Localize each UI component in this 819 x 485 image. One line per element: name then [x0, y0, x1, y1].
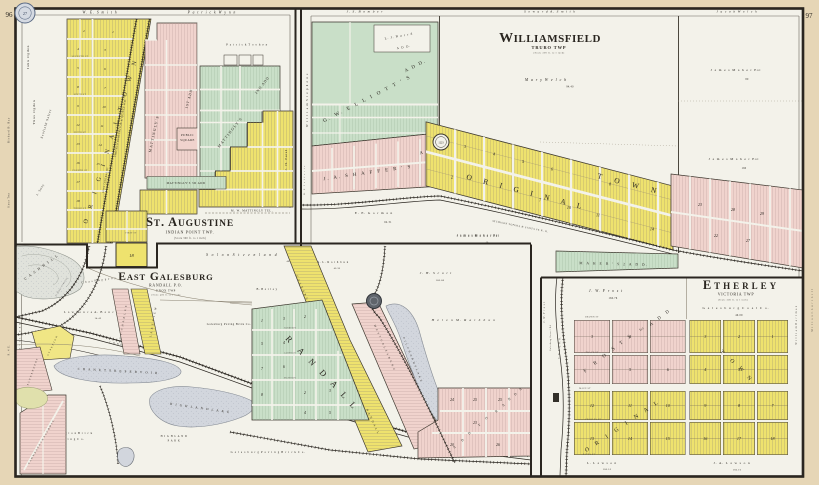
svg-text:RANDALL P.O.: RANDALL P.O. — [149, 284, 183, 288]
svg-text:17: 17 — [76, 180, 80, 184]
svg-text:160.16: 160.16 — [603, 468, 612, 471]
svg-text:FIFTH ST: FIFTH ST — [74, 132, 86, 134]
svg-text:S o l o n S t e e n l a n d: S o l o n S t e e n l a n d — [206, 253, 278, 257]
svg-text:6: 6 — [283, 365, 285, 369]
svg-text:MAIN ST: MAIN ST — [579, 387, 591, 390]
svg-text:GARFIELD: GARFIELD — [284, 352, 296, 355]
svg-text:MATTINGLY'S 3D ADD: MATTINGLY'S 3D ADD — [167, 181, 206, 185]
svg-text:2: 2 — [451, 175, 453, 180]
svg-text:BROWN ST: BROWN ST — [585, 317, 599, 319]
svg-text:J. W. F r o s t: J. W. F r o s t — [543, 301, 546, 322]
svg-text:TRURO TWP: TRURO TWP — [532, 45, 567, 50]
svg-text:4: 4 — [493, 152, 495, 157]
svg-text:97: 97 — [806, 12, 814, 20]
svg-text:5: 5 — [77, 66, 79, 70]
svg-text:SEVENTH ST: SEVENTH ST — [72, 56, 89, 58]
svg-text:E. E. G o r m a n: E. E. G o r m a n — [355, 211, 393, 215]
svg-text:23: 23 — [698, 202, 702, 207]
svg-text:15: 15 — [666, 436, 670, 441]
svg-text:3: 3 — [704, 334, 706, 339]
svg-text:14.43: 14.43 — [95, 317, 102, 320]
svg-text:VICTORIA TWP: VICTORIA TWP — [718, 292, 755, 297]
svg-text:8: 8 — [77, 85, 79, 89]
svg-text:(Scale 300 ft. to 1 inch): (Scale 300 ft. to 1 inch) — [533, 52, 564, 55]
svg-text:160: 160 — [742, 167, 747, 170]
svg-text:KNOX TWP: KNOX TWP — [156, 289, 176, 293]
svg-text:40.09: 40.09 — [735, 314, 743, 317]
svg-text:HARRISON: HARRISON — [284, 327, 296, 330]
svg-text:18: 18 — [129, 253, 134, 258]
svg-text:9: 9 — [77, 104, 79, 108]
svg-text:14: 14 — [98, 143, 102, 147]
svg-text:40.38: 40.38 — [334, 268, 341, 270]
svg-text:H I G H L A N D: H I G H L A N D — [161, 435, 188, 438]
svg-text:11: 11 — [596, 213, 600, 218]
svg-text:11: 11 — [100, 124, 103, 128]
svg-text:80: 80 — [745, 78, 749, 81]
svg-text:96: 96 — [6, 11, 14, 19]
svg-text:M i l t o n C h u r c h i l l: M i l t o n C h u r c h i l l — [811, 288, 814, 331]
svg-text:TRACY ST: TRACY ST — [586, 351, 599, 354]
svg-text:27: 27 — [23, 11, 27, 16]
svg-text:4: 4 — [304, 411, 306, 415]
svg-text:8: 8 — [261, 393, 263, 397]
svg-text:5: 5 — [261, 342, 263, 346]
svg-text:94.40: 94.40 — [566, 86, 574, 89]
svg-text:P a t r i c k W y n n: P a t r i c k W y n n — [187, 11, 237, 15]
svg-text:J. W. F r o s t: J. W. F r o s t — [589, 289, 623, 293]
svg-text:1223: 1223 — [438, 142, 444, 145]
svg-text:12: 12 — [590, 403, 594, 408]
svg-text:L. L a w s o n: L. L a w s o n — [587, 461, 617, 465]
svg-text:M. W. MATTINGLY TEL.: M. W. MATTINGLY TEL. — [231, 210, 273, 213]
svg-text:6: 6 — [104, 67, 106, 71]
svg-text:B. B a i l e y: B. B a i l e y — [256, 288, 277, 291]
svg-text:W. E. S m i t h: W. E. S m i t h — [82, 11, 117, 15]
svg-text:J a m e s M a h e r Est: J a m e s M a h e r Est — [711, 68, 762, 72]
svg-text:160.16: 160.16 — [733, 469, 742, 472]
svg-text:13: 13 — [590, 436, 594, 441]
svg-text:J. S. B o m b e r: J. S. B o m b e r — [347, 10, 384, 14]
svg-text:14: 14 — [628, 436, 632, 441]
svg-text:7: 7 — [104, 86, 106, 90]
svg-text:THIRD ST: THIRD ST — [74, 208, 87, 210]
svg-text:18: 18 — [76, 199, 80, 203]
svg-text:3: 3 — [329, 389, 331, 393]
svg-text:(Scale 300 ft. to 1 inch): (Scale 300 ft. to 1 inch) — [718, 299, 748, 302]
svg-text:1: 1 — [261, 319, 263, 323]
svg-text:10: 10 — [102, 105, 106, 109]
svg-text:G a l e s b u r g P a v i n g: G a l e s b u r g P a v i n g B r i c k … — [231, 451, 306, 454]
svg-text:3: 3 — [591, 334, 593, 339]
svg-text:INDIAN POINT TWP.: INDIAN POINT TWP. — [166, 230, 215, 235]
svg-text:P a t r i c k T o o h e y: P a t r i c k T o o h e y — [226, 43, 267, 47]
svg-text:14: 14 — [650, 227, 654, 232]
svg-text:4: 4 — [704, 367, 706, 372]
svg-text:Richard B. Ray: Richard B. Ray — [8, 117, 11, 143]
svg-text:22: 22 — [714, 233, 718, 238]
svg-text:M a r y W e l c h: M a r y W e l c h — [524, 78, 567, 82]
svg-text:ETHERLEY: ETHERLEY — [703, 278, 779, 292]
svg-text:25: 25 — [498, 398, 502, 402]
svg-text:4: 4 — [283, 341, 285, 345]
svg-text:5: 5 — [522, 159, 524, 164]
svg-text:1: 1 — [771, 334, 773, 339]
svg-text:Galesburg Paving Brick Co.: Galesburg Paving Brick Co. — [207, 323, 252, 326]
svg-text:FIRST ST: FIRST ST — [125, 233, 137, 235]
svg-text:16: 16 — [76, 161, 80, 165]
svg-text:FOURTH ST: FOURTH ST — [72, 170, 87, 172]
svg-text:John Ogden: John Ogden — [26, 45, 30, 69]
svg-text:W i l l i a m H a r t m a n: W i l l i a m H a r t m a n — [795, 305, 798, 345]
svg-text:4: 4 — [77, 47, 79, 51]
svg-text:B. F. J e f f e r i s: B. F. J e f f e r i s — [303, 165, 306, 195]
svg-text:J. A. L a w s o n: J. A. L a w s o n — [713, 461, 750, 465]
svg-text:26: 26 — [496, 443, 500, 447]
svg-text:3: 3 — [283, 317, 285, 321]
svg-text:EAST GALESBURG: EAST GALESBURG — [118, 271, 213, 283]
svg-text:W i l l i a m S t e p h e n s: W i l l i a m S t e p h e n s — [305, 73, 309, 127]
svg-text:2: 2 — [304, 391, 306, 395]
svg-text:SIXTH ST: SIXTH ST — [74, 94, 87, 96]
svg-text:(Scale 300 ft. to 1 inch): (Scale 300 ft. to 1 inch) — [174, 237, 206, 240]
svg-text:CHARLES ST: CHARLES ST — [585, 418, 601, 421]
svg-text:S e w a r d A. S m i t h: S e w a r d A. S m i t h — [524, 10, 576, 14]
svg-text:3: 3 — [464, 144, 466, 149]
svg-text:Knox Twp: Knox Twp — [8, 192, 11, 207]
svg-text:J. H. Earel: J. H. Earel — [284, 149, 288, 170]
svg-text:J. H. S c o t t: J. H. S c o t t — [420, 271, 453, 275]
svg-text:2: 2 — [83, 29, 85, 33]
svg-text:P A R K: P A R K — [168, 440, 181, 443]
svg-text:2: 2 — [304, 315, 306, 319]
svg-text:24: 24 — [450, 398, 454, 402]
svg-text:J a m e s M a h e r Est: J a m e s M a h e r Est — [457, 233, 500, 237]
svg-text:R. 4 E.: R. 4 E. — [8, 345, 11, 356]
svg-text:29: 29 — [760, 211, 764, 216]
svg-text:12: 12 — [76, 123, 80, 127]
svg-text:62.31: 62.31 — [384, 221, 392, 224]
svg-text:160.76: 160.76 — [609, 297, 618, 300]
svg-text:J a c o b W e l c h: J a c o b W e l c h — [716, 10, 757, 14]
svg-text:SQUARE: SQUARE — [180, 138, 194, 142]
svg-text:5: 5 — [629, 367, 631, 372]
svg-text:MATTISON: MATTISON — [284, 377, 296, 380]
svg-text:PUBLIC: PUBLIC — [181, 133, 194, 137]
svg-text:J a m e s M a h e r Est: J a m e s M a h e r Est — [709, 157, 760, 161]
svg-text:11: 11 — [628, 403, 632, 408]
svg-text:2: 2 — [738, 334, 740, 339]
svg-text:BATES ST: BATES ST — [583, 453, 596, 456]
svg-text:25: 25 — [473, 398, 477, 402]
svg-text:Thos Ogden: Thos Ogden — [32, 100, 36, 125]
svg-text:A. L. R a t h b u n: A. L. R a t h b u n — [317, 261, 349, 264]
svg-text:13: 13 — [76, 142, 80, 146]
svg-text:28: 28 — [731, 207, 735, 212]
svg-text:H e l e n M. R a t h b u n: H e l e n M. R a t h b u n — [431, 318, 497, 322]
svg-text:3: 3 — [104, 48, 106, 52]
svg-text:Galesburg Gravel Rd: Galesburg Gravel Rd — [549, 324, 552, 351]
svg-text:WILLIAMSFIELD: WILLIAMSFIELD — [499, 31, 601, 46]
svg-text:G a l e s b u r g C o a l: G a l e s b u r g C o a l C o. — [702, 306, 769, 310]
svg-text:160.66: 160.66 — [436, 279, 445, 282]
svg-text:1: 1 — [112, 30, 114, 34]
svg-text:5: 5 — [329, 411, 331, 415]
